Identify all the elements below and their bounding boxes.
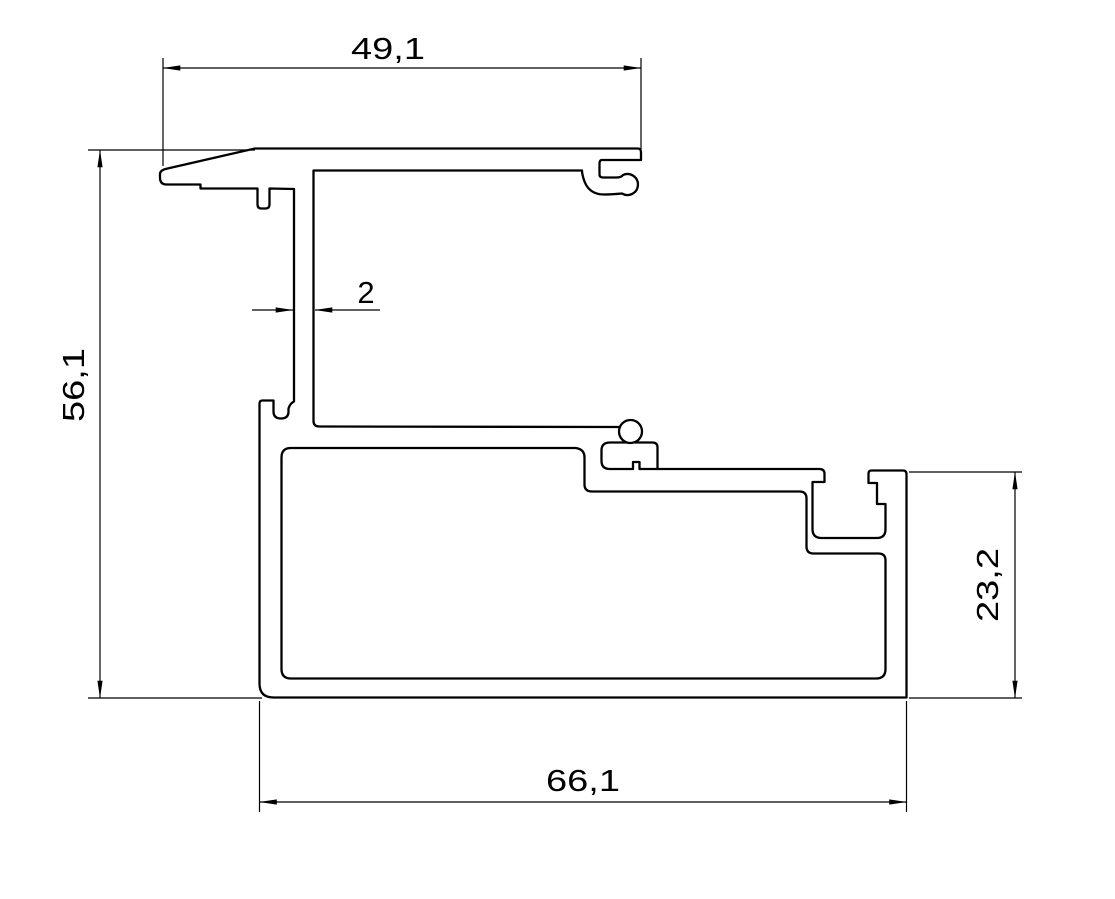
dimension-label-right-height: 23,2 [970, 548, 1005, 622]
dimension-bottom-width: 66,1 [260, 701, 907, 812]
profile-inner-cavity [282, 448, 886, 679]
dimension-right-height: 23,2 [909, 472, 1022, 698]
profile-outer-contour [160, 149, 907, 698]
dimension-label-bottom-width: 66,1 [546, 763, 620, 798]
dimension-label-wall-thickness: 2 [357, 275, 374, 310]
drawing-canvas: 49,1 56,1 2 23,2 66,1 [0, 0, 1115, 899]
dimension-label-top-width: 49,1 [351, 31, 425, 66]
glazing-bead-knob [619, 420, 642, 443]
dimension-left-height: 56,1 [56, 150, 262, 698]
dimension-wall-thickness: 2 [252, 275, 380, 310]
drawing-page: 49,1 56,1 2 23,2 66,1 [0, 0, 1115, 899]
dimension-top-width: 49,1 [163, 31, 641, 166]
dimension-label-left-height: 56,1 [56, 348, 91, 422]
profile-section [160, 149, 907, 698]
